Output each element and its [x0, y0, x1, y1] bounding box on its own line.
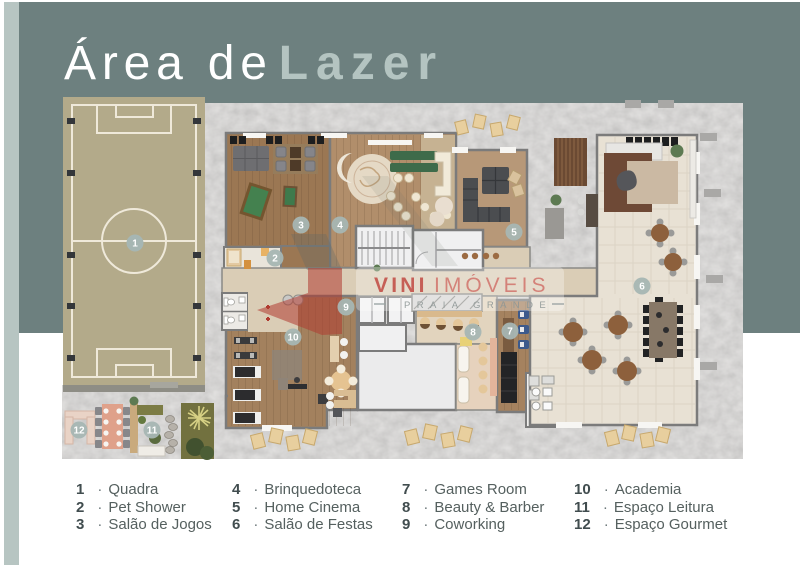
svg-text:9: 9 — [343, 303, 349, 314]
svg-text:VINI: VINI — [374, 274, 428, 297]
svg-text:2: 2 — [272, 254, 278, 265]
svg-text:PRAIA GRANDE: PRAIA GRANDE — [404, 300, 552, 311]
svg-text:12: 12 — [73, 426, 85, 437]
svg-text:4: 4 — [337, 221, 343, 232]
svg-text:IMÓVEIS: IMÓVEIS — [434, 274, 550, 297]
svg-text:7: 7 — [507, 327, 513, 338]
svg-text:1: 1 — [132, 239, 138, 250]
svg-text:5: 5 — [511, 228, 517, 239]
svg-text:10: 10 — [287, 333, 299, 344]
svg-text:3: 3 — [298, 221, 304, 232]
svg-text:6: 6 — [639, 282, 645, 293]
svg-text:11: 11 — [147, 426, 158, 437]
svg-text:8: 8 — [470, 328, 476, 339]
